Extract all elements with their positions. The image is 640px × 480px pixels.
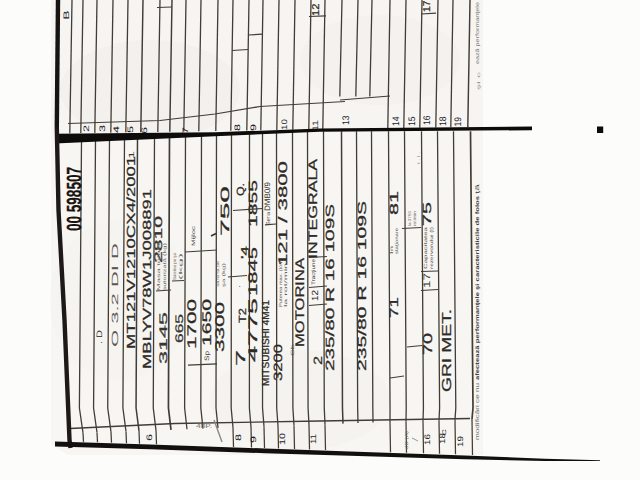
svg-text:1650: 1650 xyxy=(200,299,214,346)
svg-text:19: 19 xyxy=(456,435,465,447)
svg-text:15: 15 xyxy=(407,117,418,127)
svg-text:1855: 1855 xyxy=(246,179,260,227)
svg-text:48P.: 48P. xyxy=(196,423,212,430)
svg-text:235/80 R 16 109S: 235/80 R 16 109S xyxy=(355,201,369,371)
svg-text:9: 9 xyxy=(249,123,258,131)
svg-text:4: 4 xyxy=(112,125,121,133)
svg-text:5: 5 xyxy=(126,125,135,133)
svg-text:10: 10 xyxy=(278,432,287,445)
svg-text:75: 75 xyxy=(420,201,434,226)
svg-text:9: 9 xyxy=(249,435,258,443)
svg-text:MBLYV78W1J008891: MBLYV78W1J008891 xyxy=(140,189,154,369)
svg-text:. D: . D xyxy=(95,330,104,344)
svg-text:MT121V1210CX4/2001: MT121V1210CX4/2001 xyxy=(124,156,138,349)
svg-text:şa (kg): şa (kg) xyxy=(221,262,226,287)
svg-text:O 3.2 DI D: O 3.2 DI D xyxy=(110,242,120,347)
svg-text:81: 81 xyxy=(387,190,401,215)
svg-text:GRI MET.: GRI MET. xyxy=(439,309,454,392)
svg-text:10: 10 xyxy=(280,118,289,130)
svg-text:Tracţiune: Tracţiune xyxy=(311,259,317,285)
svg-text:ţă: ţă xyxy=(475,184,481,194)
svg-text:Masa totală: Masa totală xyxy=(156,242,161,291)
svg-text:16: 16 xyxy=(423,433,432,445)
svg-text:4775: 4775 xyxy=(246,298,260,362)
svg-text:1845: 1845 xyxy=(246,247,260,296)
svg-text:3200: 3200 xyxy=(271,344,285,381)
svg-text:17: 17 xyxy=(422,273,433,288)
svg-text:16: 16 xyxy=(422,116,433,126)
svg-text:19: 19 xyxy=(453,117,464,127)
svg-text:staţionare: staţionare xyxy=(394,227,399,254)
svg-text:70: 70 xyxy=(420,333,435,355)
svg-text:2: 2 xyxy=(82,124,91,132)
svg-text:t . l .: t . l . xyxy=(416,152,421,164)
svg-text:3: 3 xyxy=(98,124,107,132)
svg-text:1: 1 xyxy=(127,151,136,159)
svg-text:afectează performanţele şi car: afectează performanţele şi caracteristic… xyxy=(475,196,481,380)
svg-text:Sarcina pe şa: Sarcina pe şa xyxy=(172,252,177,280)
svg-text:Capacitatea: Capacitatea xyxy=(423,226,428,269)
svg-text:3300: 3300 xyxy=(213,302,227,352)
svg-text:6: 6 xyxy=(145,433,154,441)
svg-text:Mijloc: Mijloc xyxy=(191,225,197,246)
svg-text:dB (A): dB (A) xyxy=(404,430,409,449)
svg-text:121 / 3800: 121 / 3800 xyxy=(276,161,290,266)
svg-text:11: 11 xyxy=(309,433,318,444)
svg-text:DMB0/9: DMB0/9 xyxy=(263,181,272,211)
svg-text:7: 7 xyxy=(181,126,190,134)
svg-text:INTEGRALA: INTEGRALA xyxy=(306,158,320,259)
svg-text:13: 13 xyxy=(341,116,352,126)
svg-text:00 598507: 00 598507 xyxy=(63,167,86,231)
svg-text:750: 750 xyxy=(218,185,232,236)
svg-text:1700: 1700 xyxy=(185,299,199,349)
svg-text:11: 11 xyxy=(311,119,320,131)
svg-text:12: 12 xyxy=(311,3,322,16)
svg-text:MOTORINA: MOTORINA xyxy=(293,257,307,347)
svg-text:Sarcina pe: Sarcina pe xyxy=(215,260,220,287)
svg-text:rot/min: rot/min xyxy=(412,211,417,226)
svg-text:71: 71 xyxy=(387,297,401,318)
svg-text:ează performanţele: ează performanţele xyxy=(475,2,481,64)
svg-text:Seria: Seria xyxy=(266,211,272,225)
svg-text:6: 6 xyxy=(140,126,149,134)
svg-text:18: 18 xyxy=(438,432,447,444)
svg-text:17: 17 xyxy=(422,0,433,12)
svg-text:modificări ce nu: modificări ce nu xyxy=(475,383,481,440)
svg-text:Sp: Sp xyxy=(204,351,211,361)
svg-text:3145: 3145 xyxy=(158,312,170,364)
svg-text:14: 14 xyxy=(391,117,402,127)
svg-text:8: 8 xyxy=(234,433,243,441)
svg-text:rezervorului (l): rezervorului (l) xyxy=(429,226,434,269)
svg-text:şi c: şi c xyxy=(476,70,481,90)
svg-text:(kg): (kg) xyxy=(178,251,183,280)
svg-text:18: 18 xyxy=(438,117,449,127)
svg-text:la rot/min: la rot/min xyxy=(283,261,288,307)
svg-text:12: 12 xyxy=(310,290,320,301)
svg-text:B: B xyxy=(62,11,71,20)
svg-text:8: 8 xyxy=(233,123,242,131)
svg-text:235/80 R 16 109S: 235/80 R 16 109S xyxy=(323,204,337,371)
svg-text:autorizată (kg): autorizată (kg) xyxy=(162,242,167,291)
